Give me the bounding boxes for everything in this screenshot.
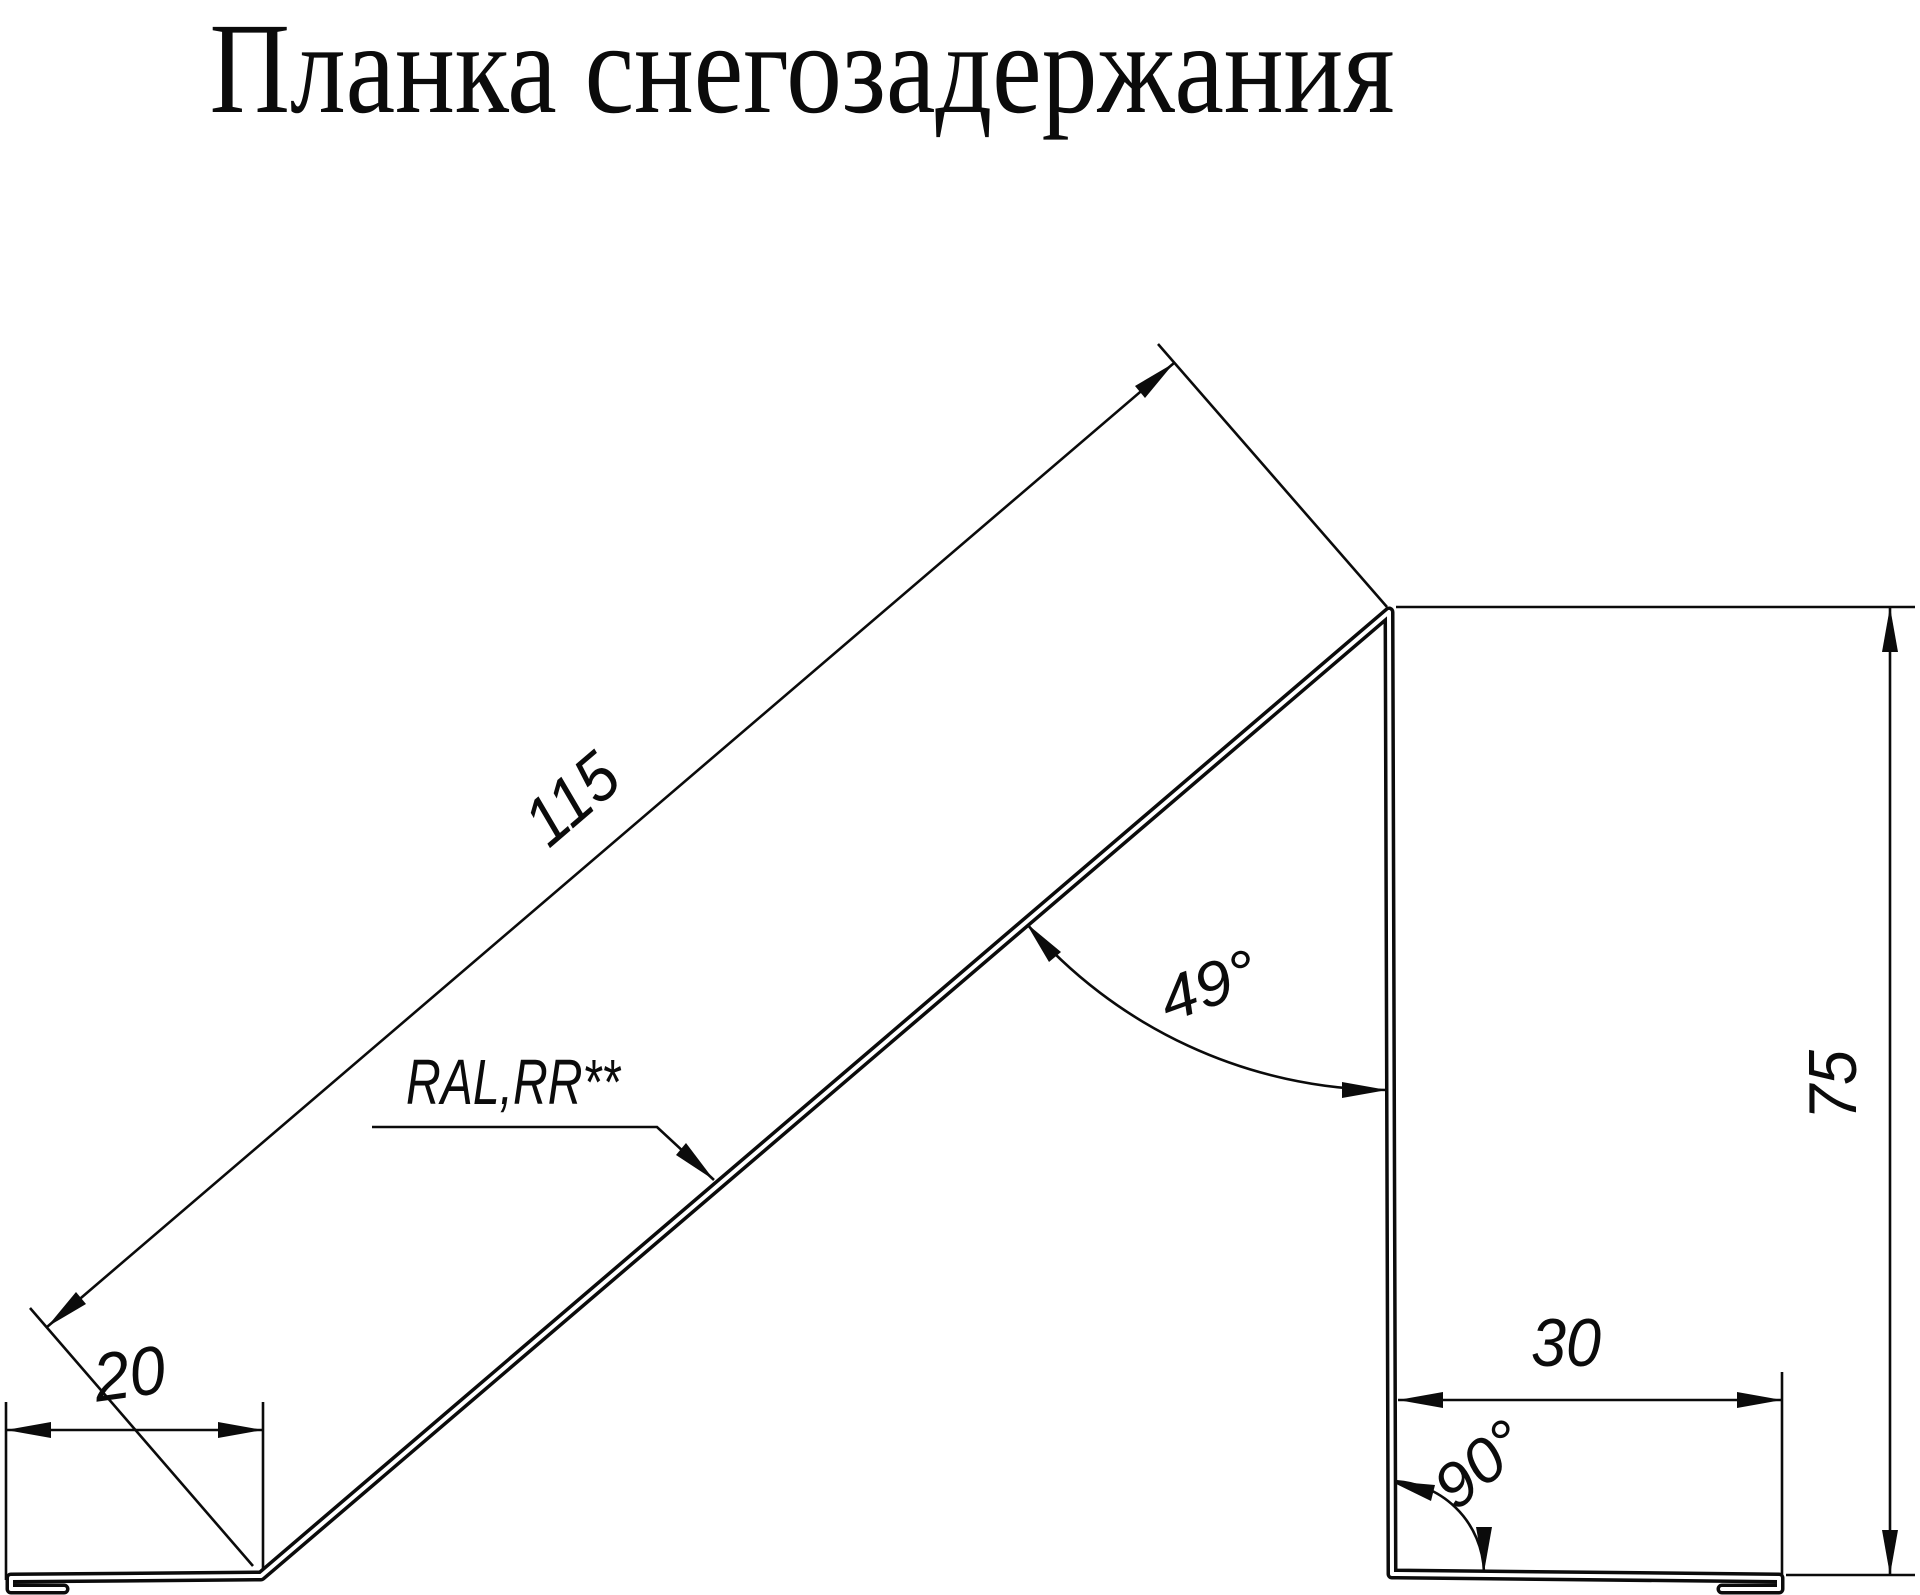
angle-label-49: 49° bbox=[1150, 937, 1268, 1036]
dim-label-20: 20 bbox=[87, 1331, 170, 1416]
arrow-115-lower bbox=[47, 1292, 86, 1327]
drawing-title: Планка снегозадержания bbox=[210, 0, 1395, 141]
dim-label-30: 30 bbox=[1531, 1305, 1601, 1381]
leader-line-coating bbox=[372, 1127, 714, 1180]
snow-guard-technical-drawing: Планка снегозадержания bbox=[0, 0, 1920, 1595]
arrow-leader-coating bbox=[676, 1143, 714, 1180]
angle-label-90: 90° bbox=[1421, 1407, 1540, 1523]
arrow-49-end bbox=[1342, 1082, 1387, 1098]
arrow-30-left bbox=[1398, 1392, 1443, 1408]
dimension-lines bbox=[6, 363, 1890, 1575]
arrow-20-left bbox=[6, 1422, 51, 1438]
arrow-115-upper bbox=[1135, 363, 1174, 398]
drawing-page: Планка снегозадержания bbox=[0, 0, 1920, 1595]
dimension-line-115 bbox=[47, 363, 1174, 1327]
coating-label: RAL,RR** bbox=[406, 1046, 622, 1118]
arrowheads bbox=[6, 363, 1898, 1575]
extension-lines bbox=[6, 344, 1915, 1582]
dim-label-75: 75 bbox=[1795, 1050, 1871, 1120]
arrow-20-right bbox=[218, 1422, 263, 1438]
arrow-90-bottom bbox=[1476, 1527, 1492, 1572]
arrow-49-start bbox=[1026, 923, 1061, 962]
extension-line-115-upper bbox=[1158, 344, 1387, 607]
angle-arcs bbox=[1026, 923, 1484, 1572]
arrow-75-top bbox=[1882, 607, 1898, 652]
arrow-75-bottom bbox=[1882, 1530, 1898, 1575]
arrow-30-right bbox=[1737, 1392, 1782, 1408]
